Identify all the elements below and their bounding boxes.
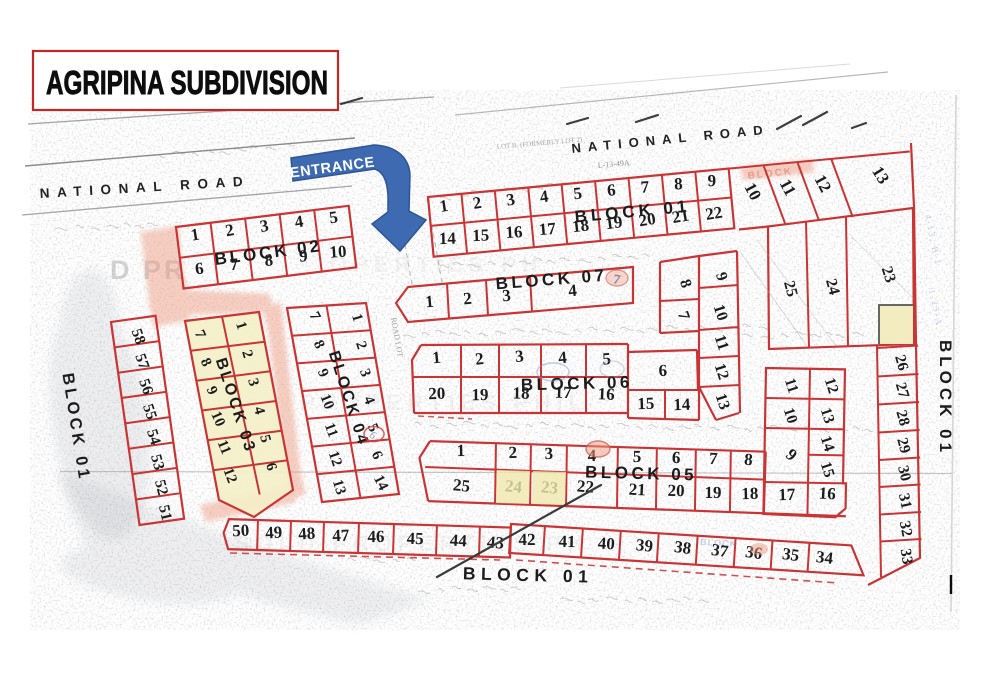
svg-text:BLOCK 06: BLOCK 06 <box>521 373 634 395</box>
svg-text:10: 10 <box>329 242 347 262</box>
svg-text:9: 9 <box>707 171 716 190</box>
svg-text:BLOCK: BLOCK <box>700 537 737 549</box>
svg-text:25: 25 <box>452 475 471 496</box>
svg-text:43: 43 <box>486 532 505 553</box>
svg-text:16: 16 <box>818 484 836 504</box>
svg-text:8: 8 <box>674 174 683 193</box>
svg-text:5: 5 <box>602 349 612 369</box>
svg-text:42: 42 <box>518 530 535 549</box>
svg-text:49: 49 <box>265 523 283 543</box>
svg-text:19: 19 <box>471 385 488 404</box>
svg-text:18: 18 <box>741 484 758 503</box>
svg-text:1: 1 <box>424 292 434 312</box>
svg-text:AGRIPINA SUBDIVISION: AGRIPINA SUBDIVISION <box>46 64 328 101</box>
svg-text:39: 39 <box>635 535 654 556</box>
svg-text:BLOCK 01: BLOCK 01 <box>463 563 594 586</box>
svg-text:15: 15 <box>637 394 655 414</box>
svg-text:7: 7 <box>709 449 719 469</box>
svg-text:8: 8 <box>743 450 753 470</box>
svg-text:34: 34 <box>815 547 835 568</box>
svg-text:2: 2 <box>462 289 472 309</box>
svg-text:BLOCK 05: BLOCK 05 <box>585 463 698 485</box>
svg-text:14: 14 <box>673 395 691 415</box>
svg-text:38: 38 <box>673 537 692 558</box>
svg-text:32: 32 <box>896 520 916 539</box>
svg-text:1: 1 <box>431 348 441 368</box>
svg-text:17: 17 <box>778 485 796 505</box>
svg-text:48: 48 <box>298 524 316 544</box>
svg-text:44: 44 <box>449 530 468 550</box>
svg-text:6: 6 <box>658 361 667 380</box>
svg-text:47: 47 <box>332 526 350 546</box>
svg-text:19: 19 <box>704 483 721 502</box>
svg-text:50: 50 <box>232 521 250 541</box>
svg-text:35: 35 <box>781 544 800 565</box>
svg-text:2: 2 <box>508 443 517 462</box>
svg-text:6: 6 <box>606 180 616 200</box>
svg-text:16: 16 <box>505 222 523 242</box>
svg-text:14: 14 <box>439 229 457 248</box>
svg-text:45: 45 <box>406 529 424 548</box>
svg-text:22: 22 <box>704 203 724 224</box>
svg-text:20: 20 <box>428 384 446 404</box>
svg-text:BLOCK 01: BLOCK 01 <box>936 340 955 456</box>
svg-text:40: 40 <box>597 534 615 554</box>
svg-text:33: 33 <box>897 547 916 565</box>
svg-text:17: 17 <box>538 219 557 239</box>
svg-text:3: 3 <box>544 444 553 463</box>
svg-text:41: 41 <box>558 532 575 551</box>
svg-text:15: 15 <box>472 226 490 246</box>
svg-text:1: 1 <box>456 441 465 460</box>
svg-text:46: 46 <box>367 527 384 546</box>
